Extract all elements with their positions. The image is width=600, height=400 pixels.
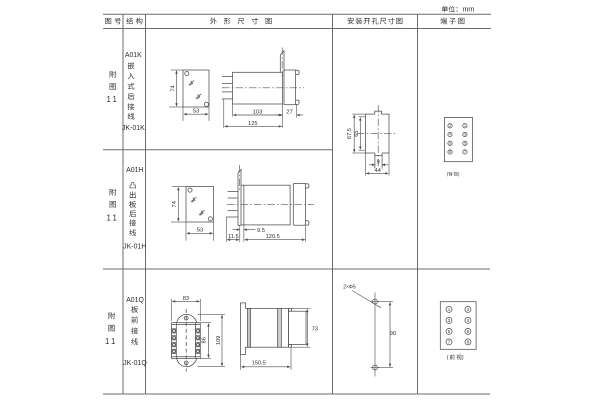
svg-text:4: 4 — [467, 318, 470, 323]
svg-text:3: 3 — [464, 133, 466, 137]
svg-text:150.5: 150.5 — [252, 360, 266, 366]
svg-text:53: 53 — [197, 228, 203, 234]
svg-text:5: 5 — [464, 142, 466, 146]
svg-text:9.5: 9.5 — [257, 228, 265, 234]
svg-text:JK-01Q: JK-01Q — [123, 360, 147, 367]
svg-text:53: 53 — [193, 109, 199, 115]
svg-text:(: ( — [447, 171, 449, 177]
svg-text:5: 5 — [448, 329, 451, 334]
svg-text:mm: mm — [463, 7, 475, 14]
svg-text:74: 74 — [172, 201, 178, 207]
svg-text:A01H: A01H — [126, 167, 143, 174]
svg-text:27: 27 — [286, 109, 292, 115]
svg-text:8: 8 — [467, 340, 470, 345]
svg-text:125: 125 — [248, 121, 258, 127]
svg-text:86: 86 — [202, 337, 208, 343]
svg-text:A01Q: A01Q — [126, 297, 144, 304]
svg-text:1: 1 — [464, 124, 466, 128]
svg-text:): ) — [458, 171, 460, 177]
svg-text:67.5: 67.5 — [347, 128, 353, 139]
svg-text:11: 11 — [107, 214, 120, 223]
svg-text:6: 6 — [467, 329, 470, 334]
svg-text:11: 11 — [107, 95, 120, 104]
svg-text:3: 3 — [448, 318, 451, 323]
svg-text:120.5: 120.5 — [266, 234, 280, 240]
svg-text:7: 7 — [464, 150, 466, 154]
svg-text:83: 83 — [183, 296, 189, 302]
svg-text:109: 109 — [216, 336, 222, 346]
svg-text:73: 73 — [312, 326, 318, 332]
svg-text:(: ( — [447, 355, 449, 361]
svg-text:90: 90 — [390, 331, 396, 337]
svg-text:2×Φ5: 2×Φ5 — [343, 285, 356, 291]
svg-text:2: 2 — [449, 124, 451, 128]
svg-text:65: 65 — [354, 130, 360, 136]
svg-text:2: 2 — [467, 307, 470, 312]
svg-text:9: 9 — [377, 159, 380, 165]
svg-text:7: 7 — [448, 340, 451, 345]
svg-text:): ) — [462, 355, 464, 361]
svg-text:74: 74 — [170, 85, 176, 91]
svg-text:11: 11 — [105, 337, 118, 346]
svg-text:11.5: 11.5 — [228, 234, 239, 240]
svg-text:4: 4 — [449, 133, 451, 137]
svg-text:6: 6 — [449, 142, 451, 146]
svg-text:103: 103 — [253, 109, 263, 115]
svg-text:8: 8 — [449, 150, 451, 154]
svg-text:44: 44 — [375, 168, 381, 174]
svg-text:JK-01K: JK-01K — [122, 125, 145, 132]
svg-text:1: 1 — [448, 307, 451, 312]
svg-text:A01K: A01K — [125, 52, 142, 59]
svg-text:JK-01H: JK-01H — [123, 244, 146, 251]
